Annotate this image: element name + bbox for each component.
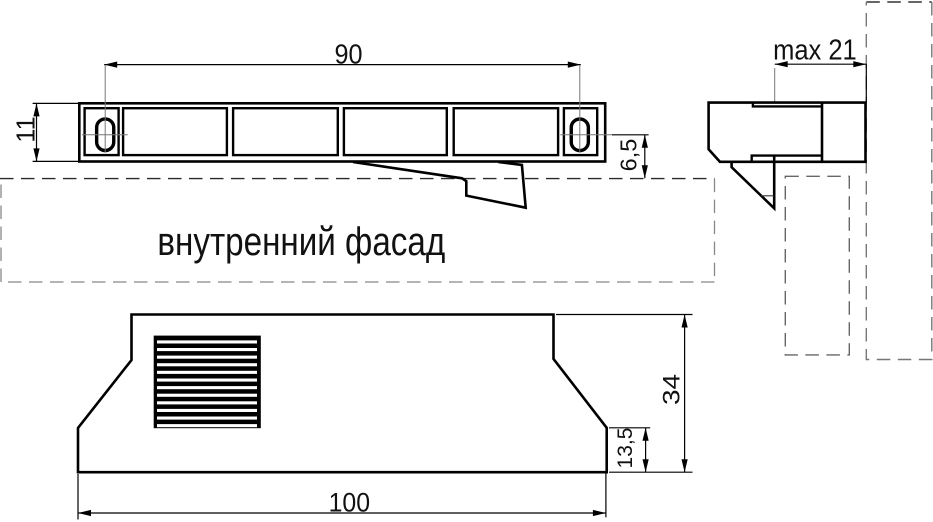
svg-text:внутренний фасад: внутренний фасад bbox=[157, 219, 445, 264]
svg-text:11: 11 bbox=[13, 116, 41, 142]
svg-text:90: 90 bbox=[334, 38, 362, 70]
svg-text:13,5: 13,5 bbox=[614, 428, 637, 469]
svg-text:6,5: 6,5 bbox=[615, 139, 641, 172]
svg-text:100: 100 bbox=[329, 489, 370, 518]
svg-text:max 21: max 21 bbox=[773, 33, 857, 66]
svg-text:34: 34 bbox=[658, 374, 685, 405]
